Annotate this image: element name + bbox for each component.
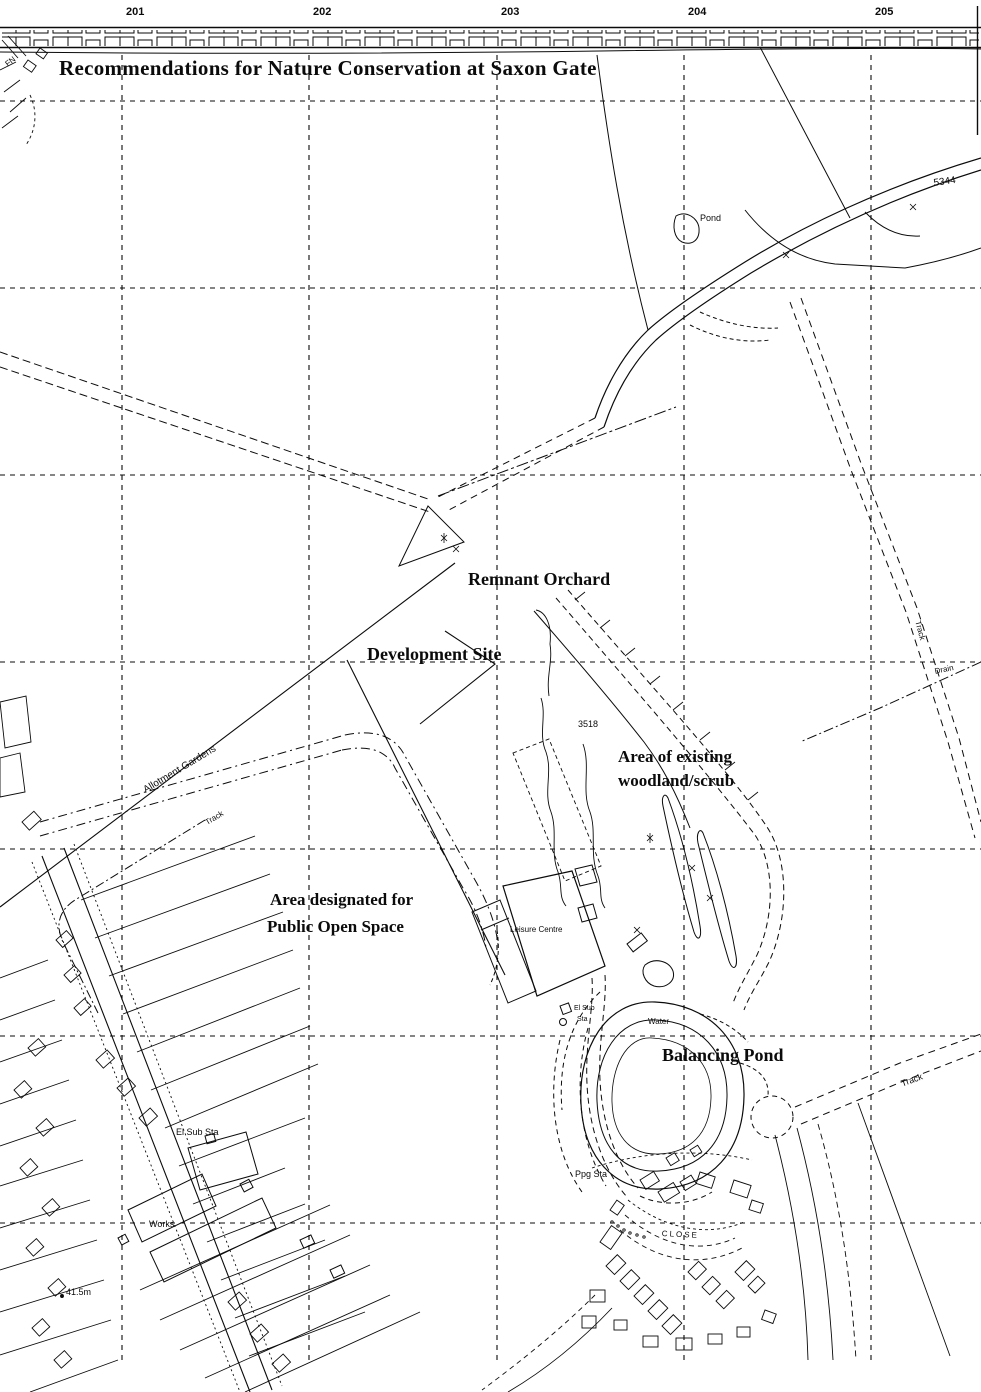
remnant-orchard-annotation: Remnant Orchard: [468, 570, 610, 588]
orchard-woodland-band: [534, 590, 784, 1010]
open-space-annotation-line1: Area designated for: [270, 891, 413, 908]
grid-number-203: 203: [501, 7, 519, 18]
map-title: Recommendations for Nature Conservation …: [59, 58, 597, 79]
grid-number-201: 201: [126, 7, 144, 18]
sw-street-terraces: [0, 696, 365, 1392]
pumping-station-label: Ppg Sta: [575, 1170, 607, 1179]
el-sub-sta-label-line1: El Sub: [574, 1005, 595, 1012]
grid-number-205: 205: [875, 7, 893, 18]
el-sub-sta-works-label: El Sub Sta: [176, 1128, 219, 1137]
open-space-annotation-line2: Public Open Space: [267, 918, 404, 935]
grid-number-204: 204: [688, 7, 706, 18]
pond-label: Pond: [700, 214, 721, 223]
map-page: Recommendations for Nature Conservation …: [0, 0, 981, 1392]
grid-lines: [0, 55, 981, 1362]
scrub-parcels: [513, 610, 605, 908]
development-boundaries: [0, 506, 505, 975]
works-label: Works: [149, 1220, 174, 1229]
parcel-number-3518: 3518: [578, 720, 598, 729]
woodland-annotation-line1: Area of existing: [618, 748, 732, 765]
water-label: Water: [648, 1018, 669, 1026]
leisure-centre-label: Leisure Centre: [510, 926, 562, 934]
tracks: [0, 298, 981, 1124]
top-fields-and-road: [595, 47, 981, 427]
grid-number-202: 202: [313, 7, 331, 18]
development-site-annotation: Development Site: [367, 645, 501, 663]
spot-height-label: 41.5m: [66, 1288, 91, 1297]
el-sub-sta-label-line2: Sta: [577, 1016, 588, 1023]
woodland-annotation-line2: woodland/scrub: [618, 772, 734, 789]
close-estate: [482, 1103, 950, 1392]
balancing-pond-annotation: Balancing Pond: [662, 1046, 784, 1064]
map-linework: [0, 0, 981, 1392]
